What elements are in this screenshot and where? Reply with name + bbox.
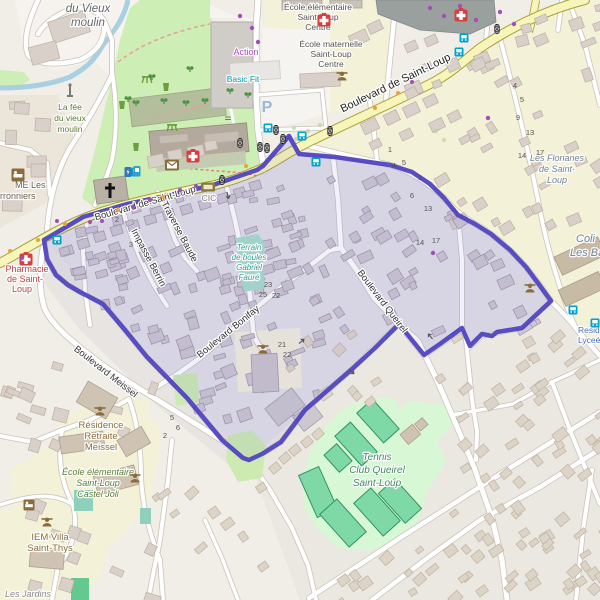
svg-text:23: 23 (264, 280, 272, 289)
svg-text:Coli: Coli (576, 233, 596, 245)
svg-text:Basic Fit: Basic Fit (227, 74, 260, 84)
svg-text:du Vieux: du Vieux (66, 3, 112, 15)
svg-text:Les Jardins: Les Jardins (5, 589, 52, 599)
svg-text:13: 13 (526, 128, 534, 137)
svg-text:Castel Joli: Castel Joli (77, 489, 120, 499)
svg-text:14: 14 (518, 151, 526, 160)
svg-text:22: 22 (283, 350, 291, 359)
svg-text:4: 4 (513, 81, 517, 90)
svg-text:Fauré: Fauré (239, 273, 260, 282)
svg-text:Meissel: Meissel (85, 442, 117, 453)
svg-text:du vieux: du vieux (54, 113, 86, 123)
svg-text:Saint-Thys: Saint-Thys (27, 543, 73, 554)
svg-text:Saint-Loup: Saint-Loup (76, 478, 120, 488)
svg-text:La fée: La fée (58, 102, 82, 112)
svg-text:5: 5 (402, 158, 406, 167)
svg-text:9: 9 (516, 113, 520, 122)
svg-text:5: 5 (520, 95, 524, 104)
svg-text:5: 5 (170, 413, 174, 422)
svg-text:2: 2 (115, 215, 119, 224)
svg-text:13: 13 (424, 204, 432, 213)
svg-text:2: 2 (163, 431, 167, 440)
svg-text:Les Bar: Les Bar (570, 247, 600, 259)
svg-text:Loup: Loup (547, 175, 567, 185)
svg-text:9: 9 (418, 173, 422, 182)
svg-text:de Saint-: de Saint- (539, 164, 575, 174)
svg-text:Saint-Loup: Saint-Loup (310, 49, 351, 59)
svg-text:École élémentaire: École élémentaire (284, 2, 352, 12)
svg-text:Retraite: Retraite (84, 431, 117, 442)
svg-text:25: 25 (259, 290, 267, 299)
svg-text:4: 4 (392, 161, 396, 170)
svg-text:17: 17 (432, 236, 440, 245)
svg-text:Saint-Loup: Saint-Loup (353, 478, 402, 489)
svg-text:17: 17 (536, 148, 544, 157)
svg-text:CIC: CIC (202, 193, 217, 203)
svg-text:3: 3 (129, 240, 133, 249)
svg-text:moulin: moulin (71, 17, 105, 29)
svg-text:6: 6 (410, 191, 414, 200)
svg-text:Centre: Centre (318, 59, 344, 69)
svg-text:IEM Villa: IEM Villa (31, 532, 69, 543)
svg-text:P: P (262, 99, 273, 116)
svg-text:14: 14 (416, 238, 424, 247)
svg-text:1: 1 (388, 145, 392, 154)
svg-text:Lyceé: Lyceé (578, 335, 600, 345)
svg-text:Terrain: Terrain (237, 243, 262, 252)
svg-text:de Saint-: de Saint- (7, 274, 43, 284)
svg-text:rronniers: rronniers (0, 191, 36, 201)
svg-text:Gabriel: Gabriel (236, 263, 262, 272)
svg-text:6: 6 (176, 423, 180, 432)
svg-text:22: 22 (272, 291, 280, 300)
svg-text:moulin: moulin (57, 124, 82, 134)
svg-text:Action: Action (233, 47, 258, 57)
svg-text:21: 21 (278, 340, 286, 349)
svg-text:Loup: Loup (12, 284, 32, 294)
svg-text:École élémentaire: École élémentaire (62, 467, 134, 477)
svg-text:École maternelle: École maternelle (299, 39, 363, 49)
svg-text:Résidence: Résidence (79, 420, 124, 431)
svg-text:Tennis: Tennis (362, 452, 391, 463)
svg-text:Club Queirel: Club Queirel (349, 465, 405, 476)
svg-text:de boules: de boules (232, 253, 267, 262)
